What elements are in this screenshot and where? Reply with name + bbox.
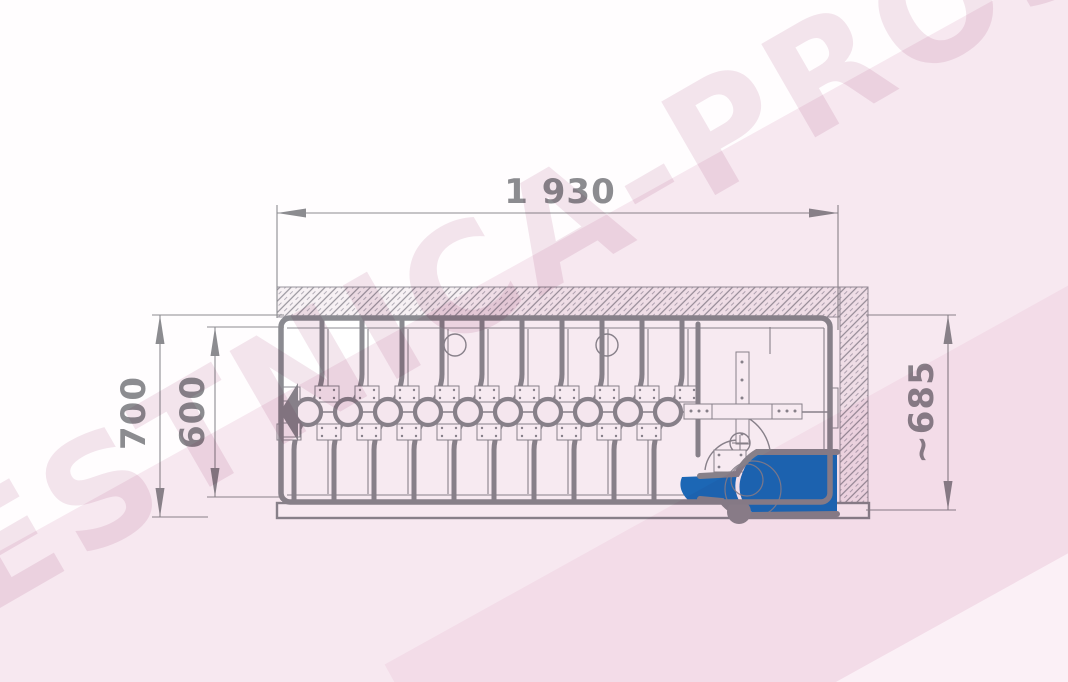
hinge-circle: [615, 399, 641, 425]
dimension-depth-inner: [207, 327, 284, 497]
dimension-depth-outer: [152, 315, 284, 517]
hinge-circle: [535, 399, 561, 425]
dimension-label-700: 700: [114, 343, 154, 483]
technical-drawing-page: 1 930 700 600 ~685 LESTNICA-PROSTO.RU: [0, 0, 1068, 682]
dimension-label-685: ~685: [902, 342, 942, 482]
dimension-label-600: 600: [173, 342, 213, 482]
hinge-circle: [375, 399, 401, 425]
hinge-circle: [335, 399, 361, 425]
wall-hatch-right: [840, 287, 868, 516]
hinge-circle: [575, 399, 601, 425]
wall-hatch-top: [277, 287, 868, 317]
loft-ladder-plan-drawing: [0, 0, 1068, 682]
hinge-circle: [295, 399, 321, 425]
dimension-label-length: 1 930: [460, 172, 660, 212]
hinge-circle: [455, 399, 481, 425]
hinge-circle: [415, 399, 441, 425]
hinge-circle: [495, 399, 521, 425]
hinge-circle: [655, 399, 681, 425]
